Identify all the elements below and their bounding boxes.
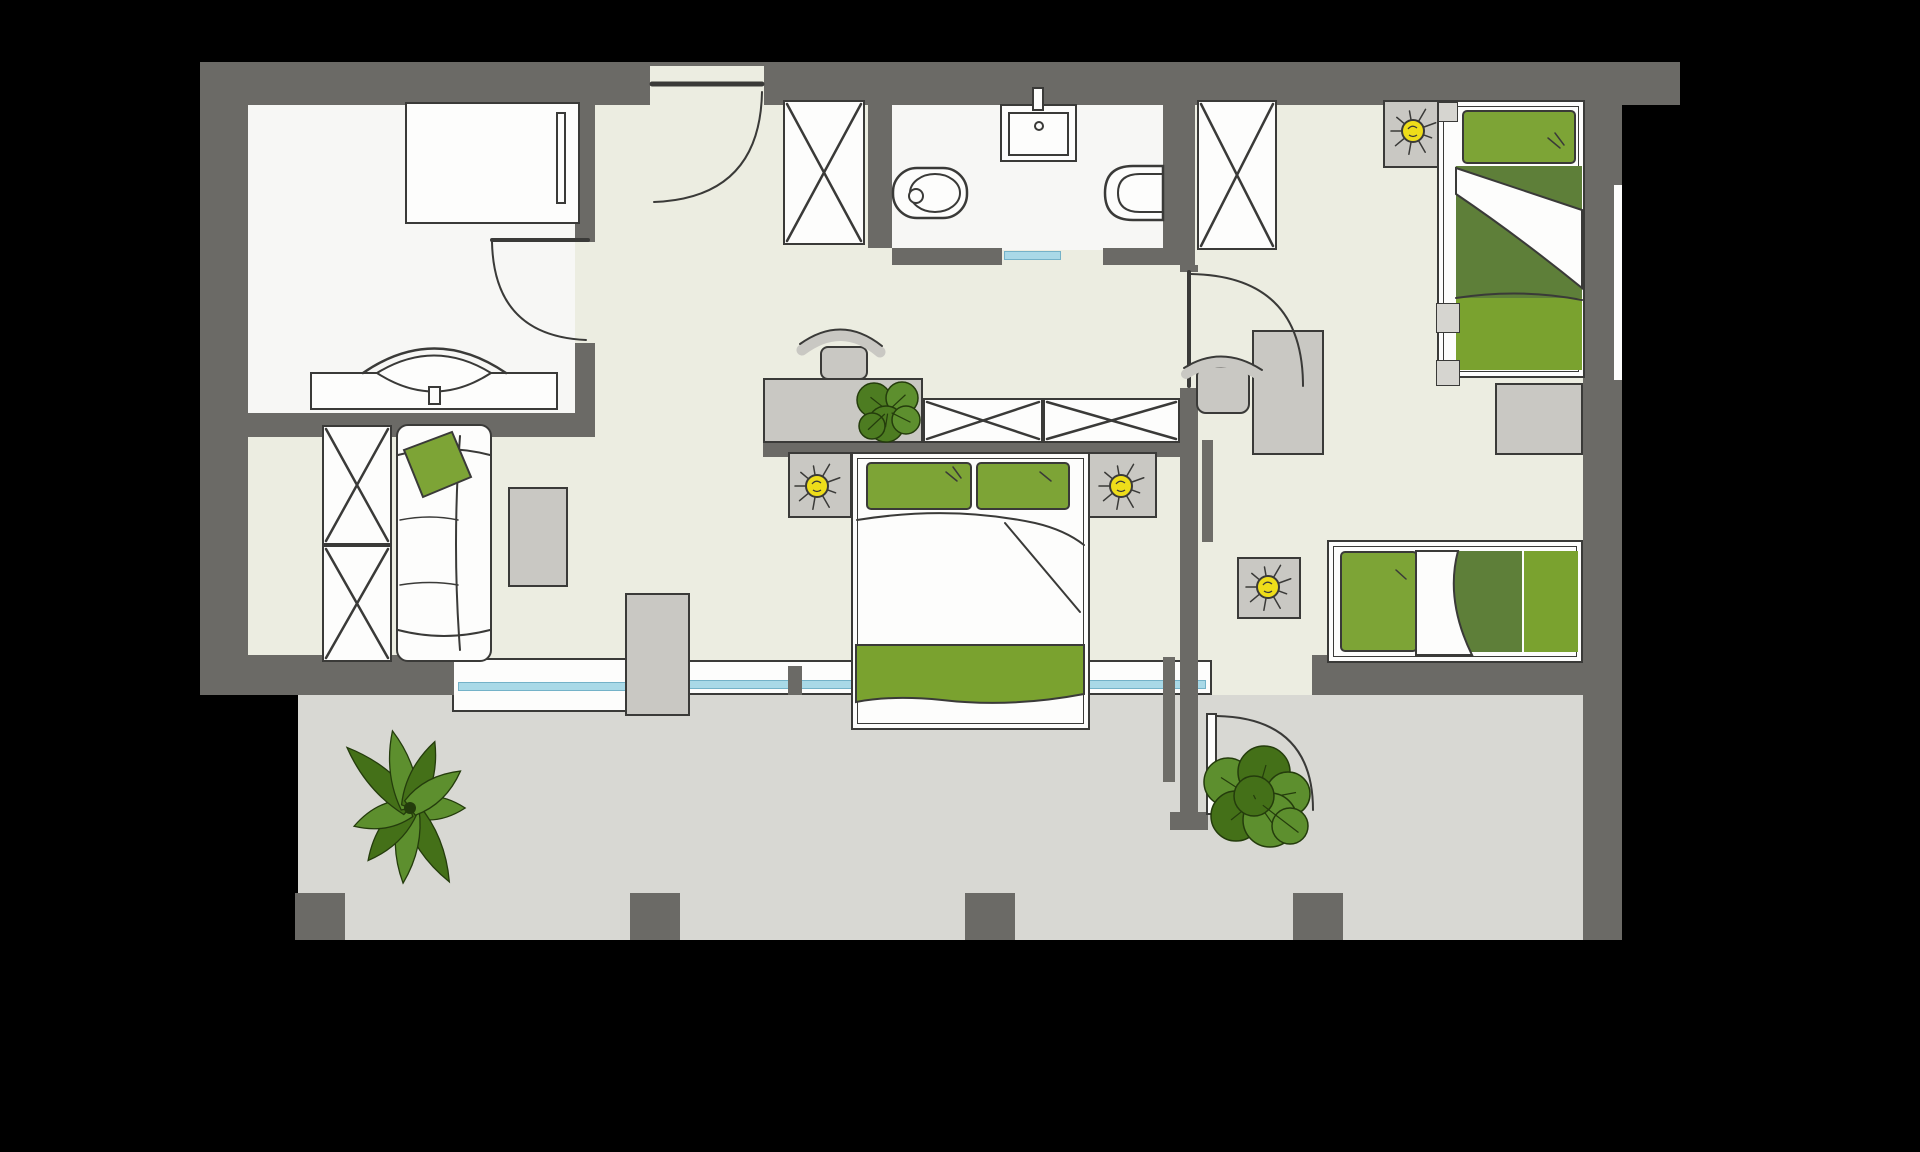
bed2-foot: [1524, 551, 1578, 652]
bed1-post-mid: [1436, 303, 1460, 333]
bed1-console: [1495, 383, 1583, 455]
living-shelf-upper: [322, 425, 392, 545]
bed1-post-bottom: [1436, 360, 1460, 386]
terrace-post-1: [295, 893, 345, 940]
nightstand-master-left: [788, 452, 852, 518]
window-mullion: [788, 666, 802, 695]
shower-tray: [405, 102, 580, 224]
terrace-post-4: [1293, 893, 1343, 940]
bed1-blanket: [1456, 166, 1582, 298]
sofa-body: [396, 424, 492, 662]
left-wall: [200, 62, 248, 695]
terrace-floor: [298, 695, 1585, 940]
bedroom2-chair-seat: [1196, 366, 1250, 414]
terrace-door-leaf: [1206, 713, 1217, 815]
top-wall: [200, 62, 1680, 105]
bed1-post-top: [1438, 102, 1458, 122]
bed2-pillow: [1340, 551, 1418, 652]
wc-south-wall-left: [892, 248, 1002, 265]
master-pillow-right: [976, 462, 1070, 510]
side-table: [508, 487, 568, 587]
shower-glass-door: [556, 112, 566, 204]
radiator-east: [1202, 440, 1213, 542]
terrace-post-3: [965, 893, 1015, 940]
radiator-west: [1163, 657, 1175, 782]
master-desk: [763, 378, 923, 443]
bed1-pillow: [1462, 110, 1576, 164]
bed2-blanket: [1422, 551, 1522, 652]
nightstand-master-right: [1088, 452, 1157, 518]
console-x-left: [923, 398, 1043, 443]
entry-door-opening: [650, 66, 764, 105]
console-x-right: [1043, 398, 1180, 443]
master-pillow-left: [866, 462, 972, 510]
terrace-post-2: [630, 893, 680, 940]
bathroom-east-wall-lower: [575, 343, 595, 437]
wc-sink-inner: [1008, 112, 1069, 156]
floor-plan-canvas: [0, 0, 1920, 1152]
wc-glass-panel: [1004, 251, 1061, 260]
divider-wall-cap: [1170, 812, 1208, 830]
divider-wall-stub: [1180, 265, 1198, 272]
coffee-table: [625, 593, 690, 716]
vanity-counter: [310, 372, 558, 410]
living-shelf-lower: [322, 545, 392, 662]
divider-wall-top: [1163, 105, 1195, 265]
living-window-glass: [458, 682, 626, 691]
master-chair-seat: [820, 346, 868, 380]
wc-west-wall: [868, 95, 892, 248]
nightstand-bed2: [1237, 557, 1301, 619]
bed1-foot: [1456, 298, 1582, 370]
right-wall-window-mark: [1614, 185, 1622, 380]
bedroom2-desk: [1252, 330, 1324, 455]
hall-wardrobe: [783, 100, 865, 245]
bedroom2-wardrobe: [1197, 100, 1277, 250]
